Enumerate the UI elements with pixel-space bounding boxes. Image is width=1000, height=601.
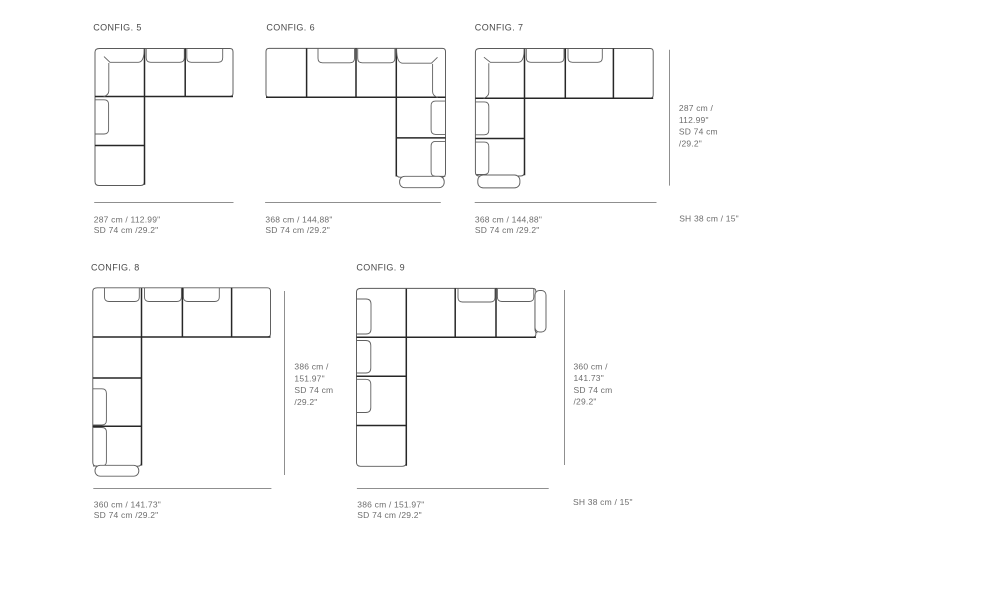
svg-text:SD 74 cm /29.2": SD 74 cm /29.2" <box>265 225 330 235</box>
svg-text:SD 74 cm /29.2": SD 74 cm /29.2" <box>475 225 540 235</box>
svg-text:SD 74 cm /29.2": SD 74 cm /29.2" <box>357 510 422 520</box>
svg-text:287 cm /: 287 cm / <box>679 103 714 113</box>
svg-text:/29.2": /29.2" <box>679 138 702 148</box>
svg-text:360 cm / 141.73": 360 cm / 141.73" <box>94 499 161 509</box>
svg-text:368 cm / 144,88": 368 cm / 144,88" <box>265 214 332 224</box>
svg-text:SD 74 cm /29.2": SD 74 cm /29.2" <box>94 510 159 520</box>
svg-text:SD 74 cm: SD 74 cm <box>294 385 333 395</box>
svg-text:112.99": 112.99" <box>679 115 709 125</box>
svg-text:SH 38 cm / 15": SH 38 cm / 15" <box>573 497 633 507</box>
svg-text:386 cm / 151.97": 386 cm / 151.97" <box>357 499 424 509</box>
svg-text:SD 74 cm /29.2": SD 74 cm /29.2" <box>94 225 159 235</box>
svg-text:287 cm / 112.99": 287 cm / 112.99" <box>94 214 161 224</box>
svg-text:CONFIG. 6: CONFIG. 6 <box>266 22 315 32</box>
svg-text:SD 74 cm: SD 74 cm <box>679 127 718 137</box>
svg-text:SD 74 cm: SD 74 cm <box>574 385 613 395</box>
svg-text:SH 38 cm / 15": SH 38 cm / 15" <box>679 213 739 223</box>
svg-text:386 cm /: 386 cm / <box>294 362 329 372</box>
svg-text:CONFIG. 5: CONFIG. 5 <box>93 22 142 32</box>
svg-text:360 cm /: 360 cm / <box>574 361 609 371</box>
svg-text:/29.2": /29.2" <box>574 397 597 407</box>
svg-text:/29.2": /29.2" <box>294 397 317 407</box>
svg-text:CONFIG. 8: CONFIG. 8 <box>91 263 140 273</box>
svg-text:CONFIG. 7: CONFIG. 7 <box>475 22 524 32</box>
svg-text:151.97": 151.97" <box>294 373 324 383</box>
svg-text:141.73": 141.73" <box>574 373 604 383</box>
svg-text:368 cm / 144,88": 368 cm / 144,88" <box>475 214 542 224</box>
svg-text:CONFIG. 9: CONFIG. 9 <box>356 263 405 273</box>
